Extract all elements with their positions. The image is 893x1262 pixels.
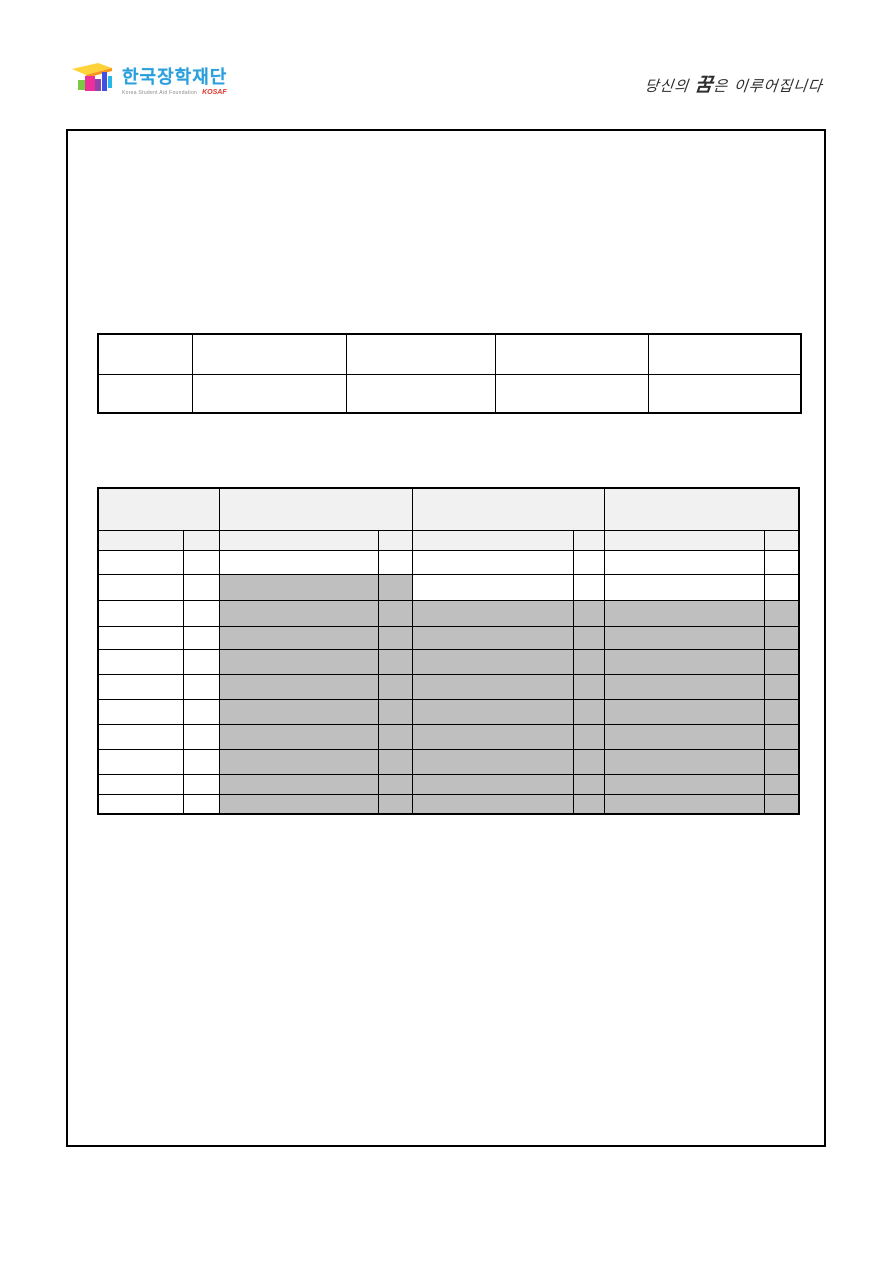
detail-table-row-cell [764, 626, 799, 649]
document-page: { "logo": { "icon": "graduation-cap-icon… [0, 0, 893, 1262]
detail-table-row-cell [183, 724, 219, 749]
slogan-emphasis: 꿈 [694, 74, 715, 96]
detail-table-row [98, 724, 799, 749]
detail-table-row-cell [604, 626, 764, 649]
info-table-row-cell [98, 374, 192, 413]
info-table-row-cell [495, 374, 648, 413]
detail-table-row-cell [764, 550, 799, 574]
detail-table-row-cell [604, 674, 764, 699]
detail-table-row-cell [98, 774, 183, 794]
detail-table-header-row-2-cell [764, 530, 799, 550]
detail-table-header-row-2-cell [378, 530, 412, 550]
detail-table-row-cell [604, 550, 764, 574]
detail-table-row-cell [219, 550, 378, 574]
detail-table-row-cell [378, 749, 412, 774]
detail-table-row-cell [378, 550, 412, 574]
detail-table-row-cell [604, 699, 764, 724]
detail-table-row-cell [604, 774, 764, 794]
detail-table-row [98, 674, 799, 699]
detail-table-row-cell [183, 674, 219, 699]
detail-table-header-row-1-cell [219, 488, 412, 530]
detail-table-row-cell [219, 574, 378, 600]
detail-table-header-row-1 [98, 488, 799, 530]
detail-table-row-cell [573, 749, 604, 774]
detail-table-row-cell [412, 749, 573, 774]
detail-table-row-cell [412, 649, 573, 674]
info-table-row-cell [192, 334, 346, 374]
detail-table-row-cell [219, 774, 378, 794]
detail-table-row-cell [764, 699, 799, 724]
detail-table-header-row-2-cell [183, 530, 219, 550]
detail-table-row-cell [183, 600, 219, 626]
detail-table-row-cell [604, 600, 764, 626]
detail-table-row-cell [183, 574, 219, 600]
detail-table-row-cell [98, 550, 183, 574]
detail-table-row-cell [378, 699, 412, 724]
detail-table-row-cell [219, 794, 378, 814]
detail-table-row-cell [378, 674, 412, 699]
detail-table-row-cell [98, 649, 183, 674]
detail-table-row-cell [764, 649, 799, 674]
detail-table-row-cell [219, 600, 378, 626]
detail-table-row-cell [378, 574, 412, 600]
detail-table-row-cell [98, 724, 183, 749]
detail-table-row-cell [573, 774, 604, 794]
info-table-row [98, 334, 801, 374]
detail-table-row-cell [378, 794, 412, 814]
detail-table-row-cell [183, 649, 219, 674]
info-table-row-cell [648, 334, 801, 374]
detail-table-row-cell [604, 649, 764, 674]
detail-table-row-cell [764, 774, 799, 794]
detail-table-row-cell [98, 749, 183, 774]
detail-table-row [98, 550, 799, 574]
detail-table-row [98, 774, 799, 794]
detail-table-row-cell [573, 626, 604, 649]
logo-subtitle-en: Korea Student Aid Foundation [122, 90, 197, 96]
info-table-row [98, 374, 801, 413]
detail-table-row-cell [764, 574, 799, 600]
detail-table-row-cell [98, 674, 183, 699]
detail-table-header-row-2-cell [98, 530, 183, 550]
info-table-row-cell [495, 334, 648, 374]
detail-table-row-cell [219, 626, 378, 649]
info-table-row-cell [98, 334, 192, 374]
detail-table-row-cell [378, 626, 412, 649]
detail-table-row-cell [412, 774, 573, 794]
detail-table-row-cell [764, 794, 799, 814]
detail-table-row [98, 649, 799, 674]
detail-table-row-cell [573, 699, 604, 724]
detail-table-row-cell [412, 626, 573, 649]
detail-table-row-cell [412, 794, 573, 814]
kosaf-logo: 한국장학재단 Korea Student Aid Foundation KOSA… [68, 56, 227, 98]
detail-table-row-cell [219, 749, 378, 774]
logo-text-block: 한국장학재단 Korea Student Aid Foundation KOSA… [122, 56, 227, 96]
detail-table-row-cell [604, 724, 764, 749]
detail-table-row [98, 794, 799, 814]
detail-table-row-cell [183, 794, 219, 814]
detail-table-row-cell [183, 774, 219, 794]
detail-table-row-cell [378, 724, 412, 749]
detail-table-header-row-2-cell [219, 530, 378, 550]
detail-table-row-cell [98, 574, 183, 600]
detail-table-row-cell [219, 699, 378, 724]
detail-table-row-cell [412, 674, 573, 699]
detail-table-row-cell [573, 724, 604, 749]
info-table-row-cell [346, 374, 495, 413]
detail-table-row-cell [604, 794, 764, 814]
detail-table-header-row-1-cell [412, 488, 604, 530]
detail-table-row-cell [412, 574, 573, 600]
detail-table-row-cell [378, 649, 412, 674]
detail-table-row-cell [604, 574, 764, 600]
detail-table-header-row-2 [98, 530, 799, 550]
detail-table-row-cell [573, 794, 604, 814]
detail-table-row-cell [378, 774, 412, 794]
detail-table-row-cell [412, 724, 573, 749]
detail-table-row-cell [764, 724, 799, 749]
slogan-suffix: 은 이루어집니다 [712, 77, 823, 95]
detail-table-row-cell [98, 600, 183, 626]
detail-table-row-cell [378, 600, 412, 626]
detail-table-row-cell [219, 649, 378, 674]
detail-table-header-row-1-cell [604, 488, 799, 530]
detail-table-row-cell [764, 674, 799, 699]
detail-table-row [98, 600, 799, 626]
detail-table-row-cell [183, 749, 219, 774]
detail-table-header-row-1-cell [98, 488, 219, 530]
detail-table-row-cell [98, 794, 183, 814]
logo-acronym: KOSAF [202, 89, 227, 96]
detail-table-row-cell [219, 674, 378, 699]
detail-table-row-cell [183, 626, 219, 649]
detail-table-row-cell [219, 724, 378, 749]
detail-table-row [98, 626, 799, 649]
detail-table-row-cell [412, 600, 573, 626]
logo-brand-text: 한국장학재단 [122, 68, 227, 86]
graduation-cap-icon [68, 56, 116, 98]
detail-table-row-cell [764, 749, 799, 774]
info-table-row-cell [192, 374, 346, 413]
detail-table-row-cell [604, 749, 764, 774]
info-table [97, 333, 802, 414]
detail-table-row [98, 574, 799, 600]
info-table-row-cell [648, 374, 801, 413]
detail-table-row-cell [573, 649, 604, 674]
document-border-frame [66, 129, 826, 1147]
detail-table-row-cell [573, 574, 604, 600]
slogan-text: 당신의 꿈은 이루어집니다 [644, 70, 827, 97]
detail-table-header-row-2-cell [412, 530, 573, 550]
detail-table-row [98, 699, 799, 724]
detail-table-row-cell [183, 550, 219, 574]
detail-table-row [98, 749, 799, 774]
slogan-prefix: 당신의 [644, 77, 696, 95]
detail-table-row-cell [98, 699, 183, 724]
detail-table-row-cell [183, 699, 219, 724]
detail-table [97, 487, 800, 815]
detail-table-header-row-2-cell [573, 530, 604, 550]
detail-table-header-row-2-cell [604, 530, 764, 550]
detail-table-row-cell [764, 600, 799, 626]
detail-table-row-cell [573, 550, 604, 574]
info-table-row-cell [346, 334, 495, 374]
detail-table-row-cell [573, 600, 604, 626]
detail-table-row-cell [412, 550, 573, 574]
detail-table-row-cell [573, 674, 604, 699]
detail-table-row-cell [98, 626, 183, 649]
detail-table-row-cell [412, 699, 573, 724]
